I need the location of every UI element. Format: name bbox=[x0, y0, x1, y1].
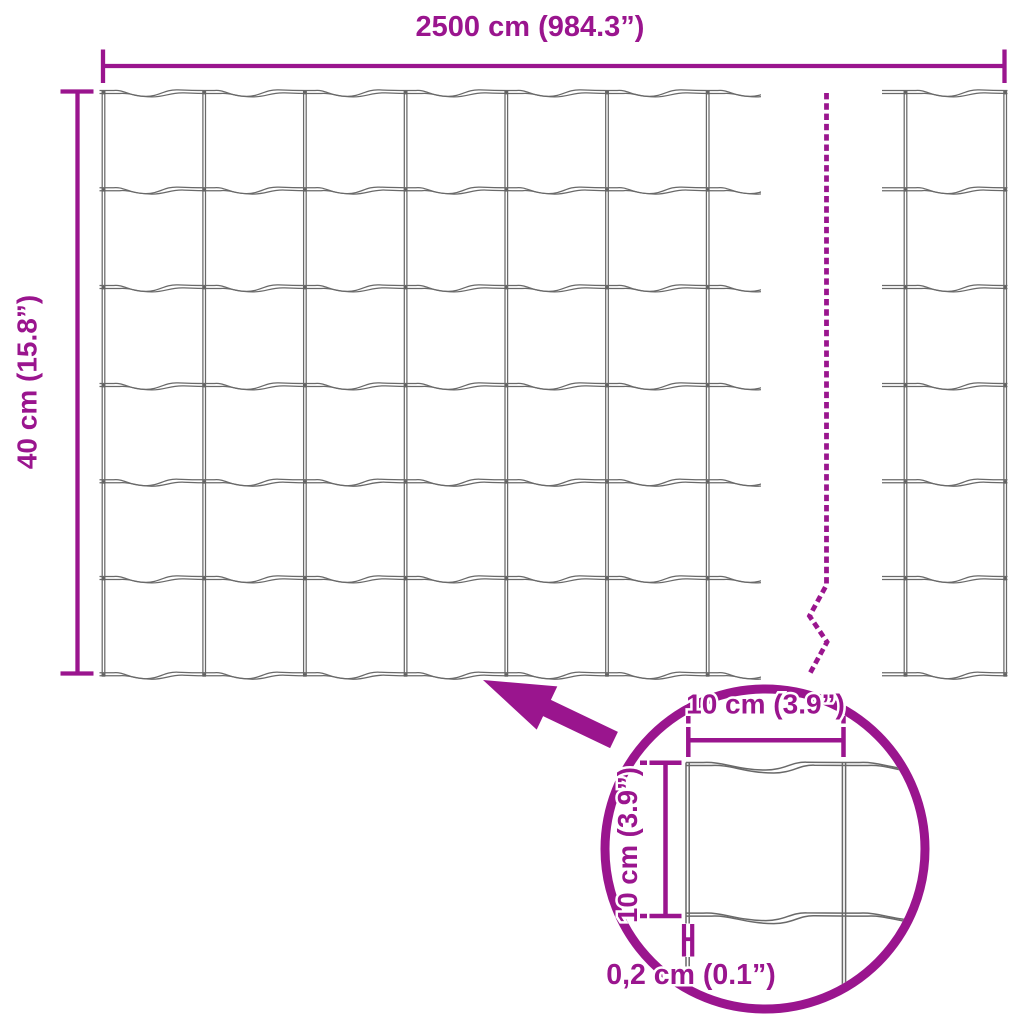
svg-text:10 cm (3.9”): 10 cm (3.9”) bbox=[612, 767, 643, 923]
svg-text:10 cm (3.9”): 10 cm (3.9”) bbox=[686, 689, 845, 720]
svg-text:2500 cm (984.3”): 2500 cm (984.3”) bbox=[416, 11, 645, 43]
svg-text:0,2 cm (0.1”): 0,2 cm (0.1”) bbox=[606, 959, 776, 991]
svg-text:40 cm (15.8”): 40 cm (15.8”) bbox=[12, 295, 43, 469]
